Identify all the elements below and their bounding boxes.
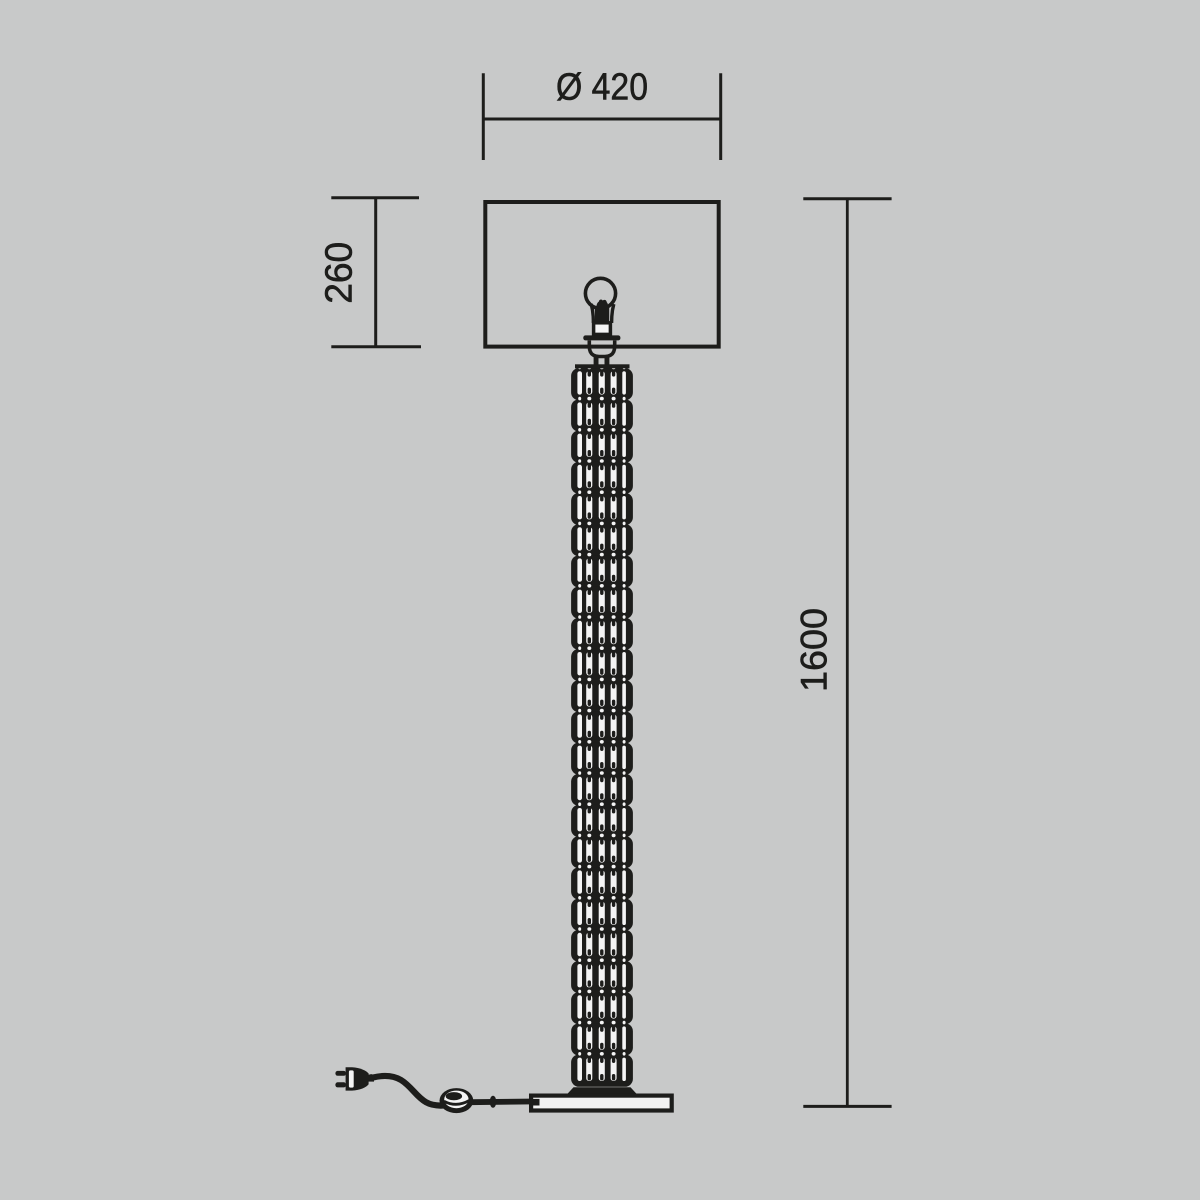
svg-text:1600: 1600	[794, 608, 835, 692]
svg-text:260: 260	[319, 242, 361, 304]
svg-text:Ø 420: Ø 420	[556, 67, 648, 109]
